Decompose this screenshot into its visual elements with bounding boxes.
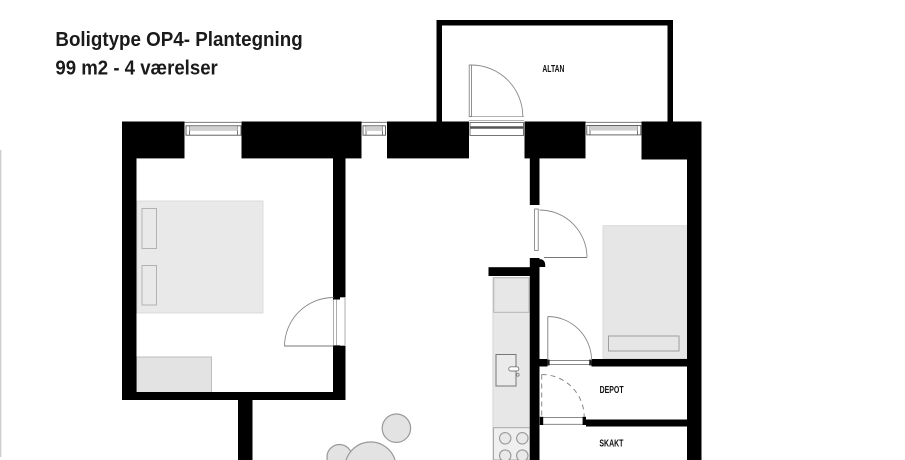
svg-text:SKAKT: SKAKT	[599, 439, 623, 450]
svg-text:DEPOT: DEPOT	[600, 385, 624, 396]
svg-text:Boligtype OP4- Plantegning: Boligtype OP4- Plantegning	[55, 29, 302, 51]
svg-text:99 m2 - 4 værelser: 99 m2 - 4 værelser	[55, 57, 218, 79]
svg-text:ALTAN: ALTAN	[542, 64, 564, 75]
